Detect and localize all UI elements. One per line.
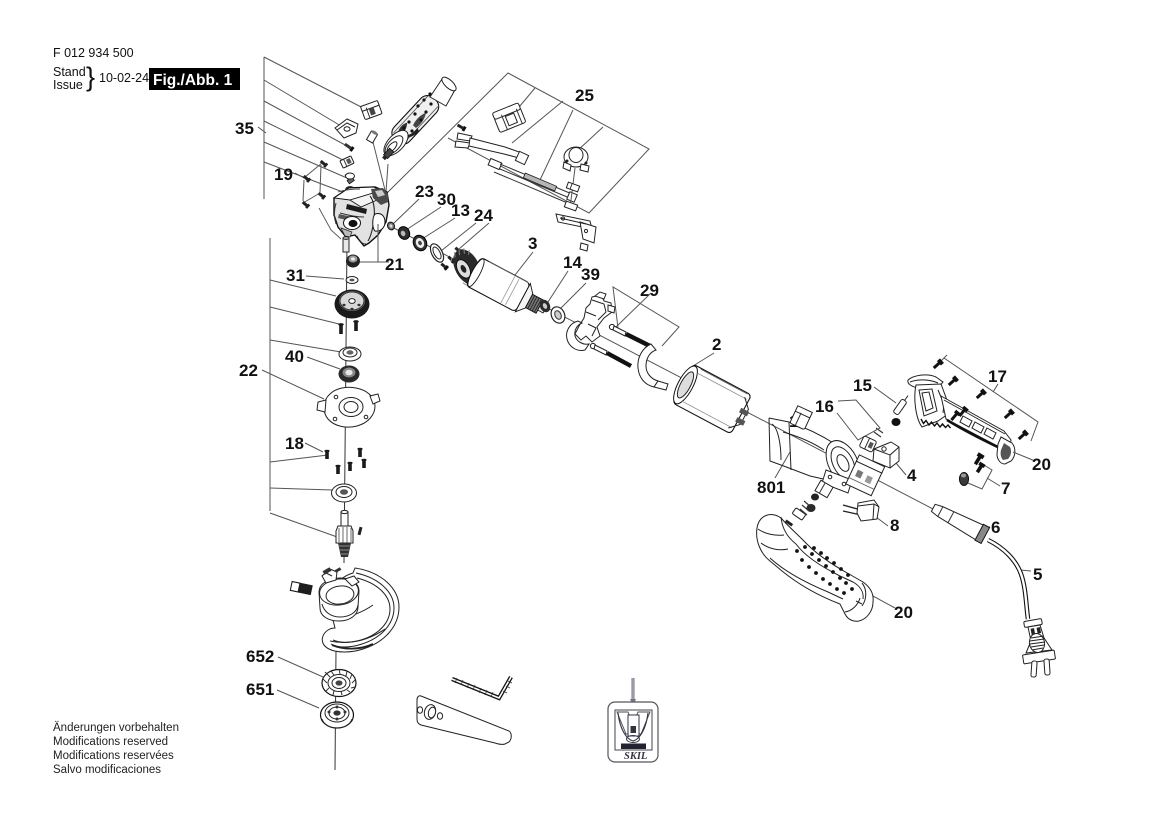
svg-text:18: 18 [285, 434, 304, 453]
svg-text:2: 2 [712, 335, 721, 354]
svg-text:Fig./Abb. 1: Fig./Abb. 1 [153, 72, 233, 89]
svg-text:Stand: Stand [53, 65, 86, 79]
svg-text:19: 19 [274, 165, 293, 184]
svg-text:23: 23 [415, 182, 434, 201]
svg-text:16: 16 [815, 397, 834, 416]
svg-text:15: 15 [853, 376, 872, 395]
svg-text:17: 17 [988, 367, 1007, 386]
svg-text:35: 35 [235, 119, 254, 138]
svg-text:3: 3 [528, 234, 537, 253]
svg-text:10-02-24: 10-02-24 [99, 71, 149, 85]
svg-text:8: 8 [890, 516, 899, 535]
svg-text:801: 801 [757, 478, 785, 497]
svg-text:25: 25 [575, 86, 594, 105]
svg-text:}: } [86, 62, 95, 92]
svg-text:20: 20 [894, 603, 913, 622]
svg-text:6: 6 [991, 518, 1000, 537]
svg-text:29: 29 [640, 281, 659, 300]
svg-text:31: 31 [286, 266, 305, 285]
svg-text:21: 21 [385, 255, 404, 274]
svg-text:22: 22 [239, 361, 258, 380]
svg-text:40: 40 [285, 347, 304, 366]
svg-text:4: 4 [907, 466, 917, 485]
svg-text:Modifications reserved: Modifications reserved [53, 736, 168, 748]
svg-text:652: 652 [246, 647, 274, 666]
svg-text:Issue: Issue [53, 78, 83, 92]
svg-text:24: 24 [474, 206, 493, 225]
svg-text:14: 14 [563, 253, 582, 272]
svg-text:7: 7 [1001, 479, 1010, 498]
svg-text:39: 39 [581, 265, 600, 284]
svg-text:SKIL: SKIL [624, 751, 647, 762]
svg-text:651: 651 [246, 680, 274, 699]
svg-text:Salvo modificaciones: Salvo modificaciones [53, 764, 161, 776]
svg-text:Änderungen vorbehalten: Änderungen vorbehalten [53, 722, 179, 734]
svg-text:Modifications reservées: Modifications reservées [53, 750, 174, 762]
svg-text:5: 5 [1033, 565, 1042, 584]
svg-text:20: 20 [1032, 455, 1051, 474]
svg-text:13: 13 [451, 201, 470, 220]
svg-text:F 012 934 500: F 012 934 500 [53, 46, 134, 60]
